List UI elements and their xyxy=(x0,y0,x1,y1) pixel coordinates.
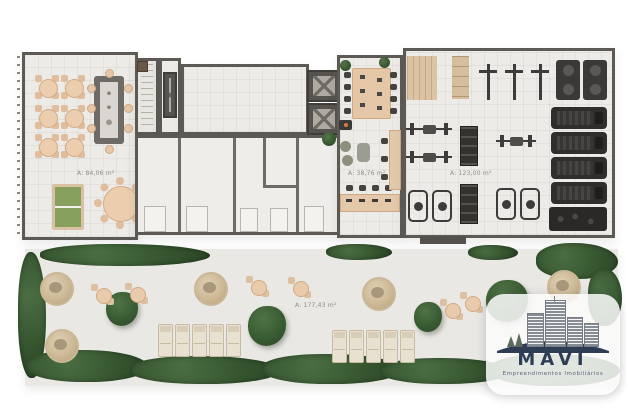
office-chair xyxy=(372,185,379,191)
lounge-pouf xyxy=(342,155,353,166)
treadmill xyxy=(551,132,607,154)
bathrooms xyxy=(135,135,340,235)
lounge-pouf xyxy=(340,141,351,152)
elevator-cab xyxy=(313,76,335,96)
office-chair xyxy=(390,96,397,102)
monitor-icon xyxy=(385,199,391,202)
floor-plan: A: 84,06 m² xyxy=(0,0,626,416)
sun-lounger xyxy=(175,324,190,357)
logo-box: MAVI Empreendimentos Imobiliários xyxy=(486,294,620,395)
bistro-table xyxy=(33,132,61,160)
gym-mat xyxy=(549,207,607,231)
stool xyxy=(87,104,96,113)
logo-name: MAVI xyxy=(517,351,588,369)
sofa xyxy=(357,143,370,162)
table-top xyxy=(39,138,58,157)
sun-lounger xyxy=(332,330,347,363)
exercise-machine xyxy=(520,188,540,220)
tree-icon xyxy=(507,336,515,347)
terrace-table xyxy=(91,283,115,307)
monitor-icon xyxy=(346,199,352,202)
hedge xyxy=(326,244,392,260)
interior-wall xyxy=(263,138,266,188)
toilet-stall xyxy=(186,206,208,232)
office-chair xyxy=(381,138,388,144)
treadmill xyxy=(551,182,607,204)
table-top xyxy=(445,303,461,319)
storage-rack xyxy=(460,184,478,224)
office-chair xyxy=(344,96,351,102)
stool xyxy=(105,69,114,78)
bistro-table xyxy=(59,132,87,160)
table-top xyxy=(96,288,112,304)
weight-plate xyxy=(444,151,448,163)
weight-bench xyxy=(530,64,550,100)
stool xyxy=(124,84,133,93)
stair-treads xyxy=(141,64,153,129)
round-planter xyxy=(45,329,79,363)
elevator-cab xyxy=(169,78,171,112)
bench xyxy=(423,125,436,134)
weight-bench xyxy=(478,64,498,100)
hedge xyxy=(468,245,518,260)
interior-wall xyxy=(178,138,181,232)
office-chair xyxy=(344,72,351,78)
office-chair xyxy=(390,108,397,114)
office-chair xyxy=(381,174,388,180)
coworking-area-label: A: 38,76 m² xyxy=(348,170,385,177)
wall-tick-marks xyxy=(17,56,20,236)
monitor-icon xyxy=(359,199,365,202)
terrace-table xyxy=(246,275,270,299)
round-planter xyxy=(194,272,228,306)
meeting-table xyxy=(352,68,391,119)
storage-rack xyxy=(460,126,478,166)
table-top xyxy=(293,281,309,297)
logo-buildings xyxy=(499,301,607,347)
office-chair xyxy=(346,185,353,191)
cabinet xyxy=(137,61,148,72)
stool xyxy=(87,124,96,133)
tree-icon xyxy=(515,333,523,347)
lounge-area-label: A: 84,06 m² xyxy=(77,170,114,177)
exercise-machine xyxy=(432,190,452,222)
interior-wall xyxy=(263,185,299,188)
entry-mat xyxy=(420,236,466,244)
office-chair xyxy=(344,108,351,114)
round-planter xyxy=(40,272,74,306)
exercise-machine xyxy=(408,190,428,222)
weight-plate xyxy=(528,135,532,147)
desk-counter xyxy=(340,194,400,212)
stool xyxy=(124,124,133,133)
sun-lounger xyxy=(192,324,207,357)
weight-plate xyxy=(444,123,448,135)
terrace-table xyxy=(288,276,312,300)
barbell-station xyxy=(406,148,452,166)
bistro-table xyxy=(33,73,61,101)
strength-machine xyxy=(556,60,580,100)
hedge xyxy=(40,244,210,266)
table-top xyxy=(65,79,84,98)
sun-lounger xyxy=(383,330,398,363)
elevator-cab xyxy=(313,109,335,129)
ping-pong-felt xyxy=(55,187,81,227)
stool xyxy=(87,84,96,93)
sun-lounger xyxy=(158,324,173,357)
building-icon xyxy=(584,323,599,347)
bistro-table xyxy=(59,103,87,131)
table-top xyxy=(130,287,146,303)
bistro-table xyxy=(33,103,61,131)
treadmill xyxy=(551,157,607,179)
gym-area-label: A: 123,00 m² xyxy=(450,170,491,177)
ping-pong-table xyxy=(52,184,84,230)
bench-press xyxy=(496,132,536,150)
sun-lounger xyxy=(349,330,364,363)
office-chair xyxy=(390,84,397,90)
strength-machine xyxy=(583,60,607,100)
elevator-shaft xyxy=(163,72,177,118)
table-top xyxy=(65,109,84,128)
barbell-station xyxy=(406,120,452,138)
office-chair xyxy=(390,72,397,78)
toilet-stall xyxy=(270,208,288,232)
bench xyxy=(510,137,523,146)
table-top xyxy=(39,109,58,128)
table-top xyxy=(39,79,58,98)
building-icon xyxy=(527,313,544,347)
terrace-table xyxy=(460,291,484,315)
office-chair xyxy=(359,185,366,191)
stool xyxy=(105,145,114,154)
antenna-icon xyxy=(554,296,555,302)
weight-bench xyxy=(504,64,524,100)
round-planter xyxy=(362,277,396,311)
terrace-table xyxy=(125,282,149,306)
treadmill xyxy=(551,107,607,129)
monitor-icon xyxy=(372,199,378,202)
table-top xyxy=(465,296,481,312)
exercise-machine xyxy=(496,188,516,220)
table-top xyxy=(65,138,84,157)
toilet-stall xyxy=(240,208,258,232)
toilet-stall xyxy=(304,206,324,232)
side-counter xyxy=(389,130,401,190)
bench xyxy=(423,153,436,162)
wood-deck xyxy=(407,56,437,100)
office-chair xyxy=(344,84,351,90)
dumbbell-rack xyxy=(452,56,469,99)
fireplace xyxy=(339,120,352,130)
kitchen-counter xyxy=(100,82,118,138)
interior-wall xyxy=(233,138,236,232)
table-top xyxy=(103,186,139,222)
chair-icon xyxy=(116,177,124,185)
elevator-shaft xyxy=(307,70,341,102)
plant xyxy=(322,132,336,146)
toilet-stall xyxy=(144,206,166,232)
sun-lounger xyxy=(209,324,224,357)
table-top xyxy=(251,280,267,296)
hedge xyxy=(130,356,280,384)
elevator-shaft xyxy=(307,103,341,135)
office-chair xyxy=(381,156,388,162)
building-icon xyxy=(567,317,583,347)
terrace-area-label: A: 177,43 m² xyxy=(295,302,336,309)
logo-tagline: Empreendimentos Imobiliários xyxy=(503,371,604,377)
bistro-table xyxy=(59,73,87,101)
plant xyxy=(340,60,351,71)
sun-lounger xyxy=(226,324,241,357)
plant xyxy=(379,57,390,68)
sun-lounger xyxy=(400,330,415,363)
stool xyxy=(124,104,133,113)
building-icon xyxy=(545,300,566,347)
elevator-lobby xyxy=(181,64,309,135)
sun-lounger xyxy=(366,330,381,363)
